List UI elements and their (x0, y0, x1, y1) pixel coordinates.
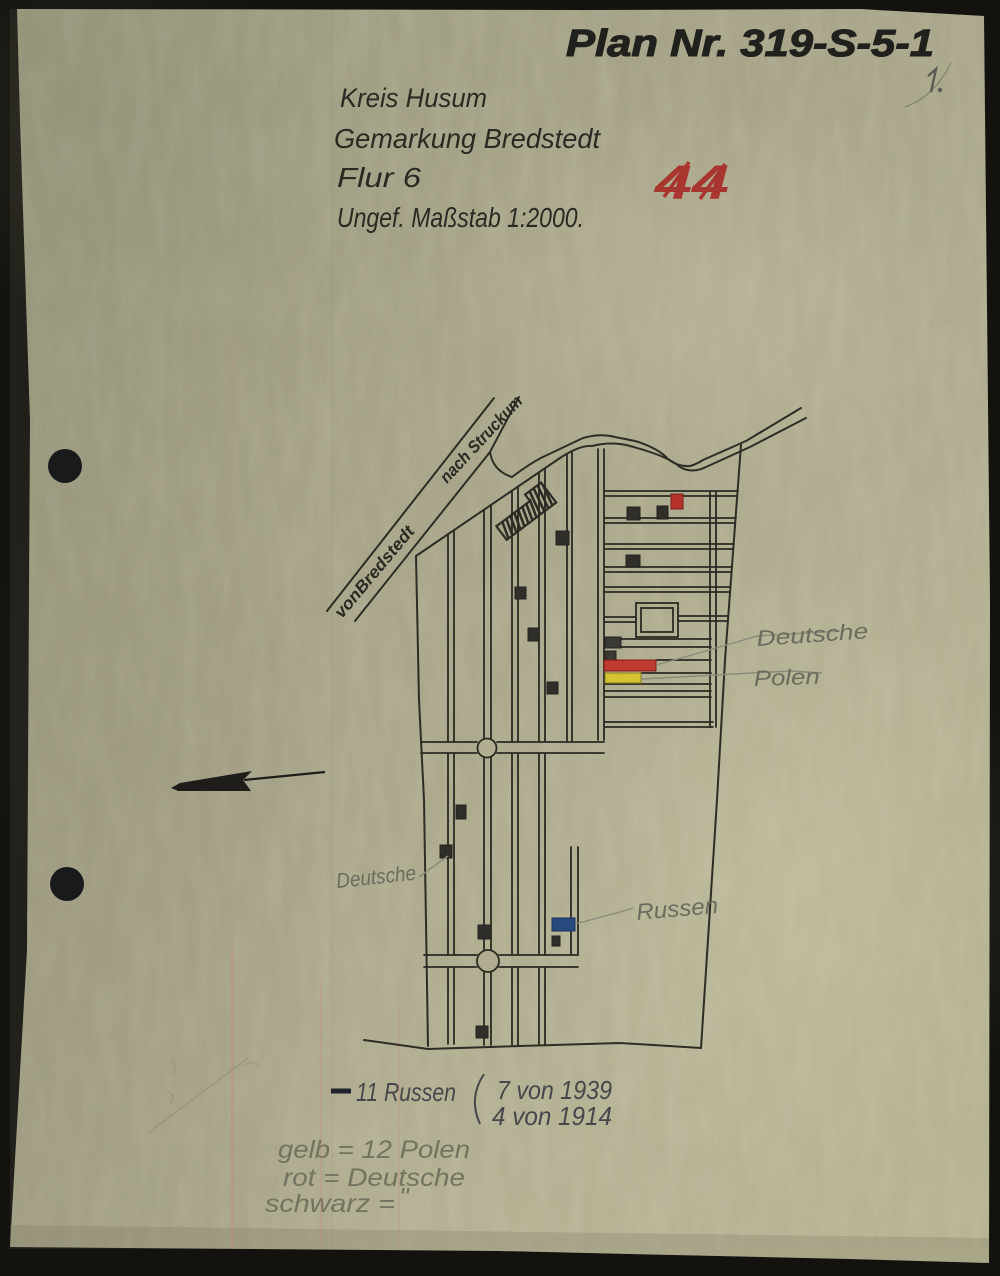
svg-text:Polen: Polen (753, 664, 820, 691)
svg-text:gelb = 12 Polen: gelb = 12 Polen (278, 1136, 470, 1164)
svg-text:Kreis Husum: Kreis Husum (340, 83, 487, 113)
svg-text:'': '' (399, 1182, 410, 1212)
svg-text:schwarz =: schwarz = (265, 1190, 395, 1218)
svg-text:Ungef. Maßstab 1:2000.: Ungef. Maßstab 1:2000. (337, 202, 584, 233)
svg-text:44: 44 (654, 157, 729, 210)
svg-text:Flur 6: Flur 6 (337, 162, 421, 193)
svg-text:rot = Deutsche: rot = Deutsche (283, 1164, 465, 1192)
svg-text:Gemarkung Bredstedt: Gemarkung Bredstedt (334, 123, 601, 154)
svg-text:11 Russen: 11 Russen (356, 1077, 456, 1107)
svg-text:Plan Nr. 319-S-5-1: Plan Nr. 319-S-5-1 (566, 23, 934, 65)
svg-text:4 von 1914: 4 von 1914 (492, 1101, 612, 1131)
